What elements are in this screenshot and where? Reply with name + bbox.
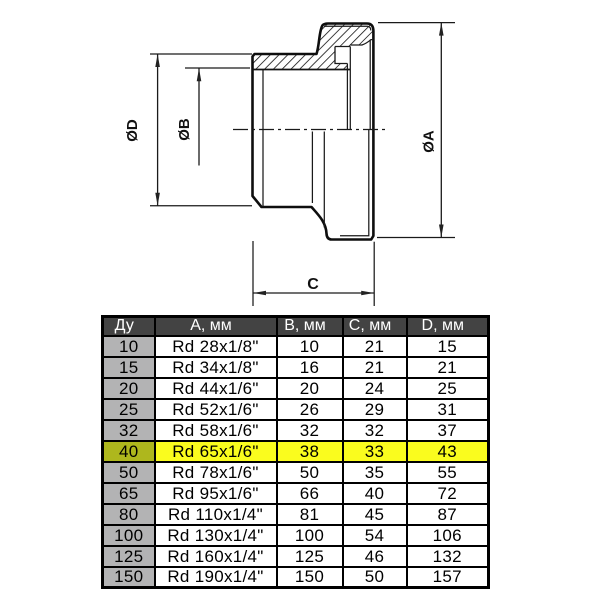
svg-text:ØD: ØD: [124, 119, 141, 142]
svg-text:ØA: ØA: [420, 130, 437, 153]
svg-text:C: C: [307, 276, 319, 293]
svg-text:ØB: ØB: [176, 118, 193, 141]
